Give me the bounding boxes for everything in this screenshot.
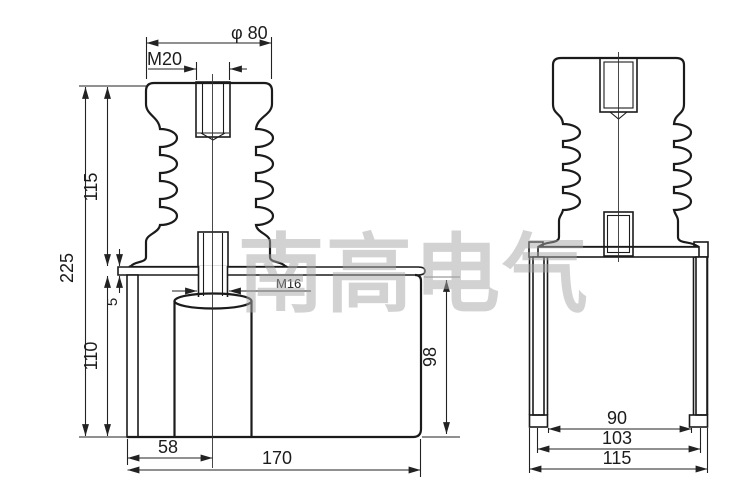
dim-insulator-height-label: 115 (81, 173, 101, 202)
dim-top-thread: M20 (147, 49, 247, 80)
dim-outer-width-label: 115 (603, 448, 632, 468)
box-foot-left (530, 415, 548, 427)
dim-total-height-label: 225 (57, 253, 77, 283)
dim-inner-width-label: 90 (607, 408, 627, 428)
box-foot-right (690, 415, 708, 427)
dim-center-offset: 58 (128, 437, 213, 465)
watermark-text: 南高电气 (238, 225, 590, 325)
dim-inner-height-label: 98 (420, 347, 440, 367)
dim-box-height-label: 110 (81, 342, 101, 371)
dim-mid-width-label: 103 (602, 428, 632, 448)
dim-box-width-label: 170 (262, 448, 292, 468)
technical-drawing-svg: φ 80 M20 225 115 5 110 (0, 0, 750, 500)
dim-center-offset-label: 58 (158, 437, 178, 457)
dim-total-height: 225 (57, 87, 86, 436)
dim-top-diameter-label: φ 80 (231, 23, 268, 43)
dim-flange-thickness: 5 (104, 249, 121, 306)
dim-top-thread-label: M20 (147, 49, 182, 69)
dim-flange-thickness-label: 5 (104, 298, 121, 306)
drawing-canvas: φ 80 M20 225 115 5 110 (0, 0, 750, 500)
